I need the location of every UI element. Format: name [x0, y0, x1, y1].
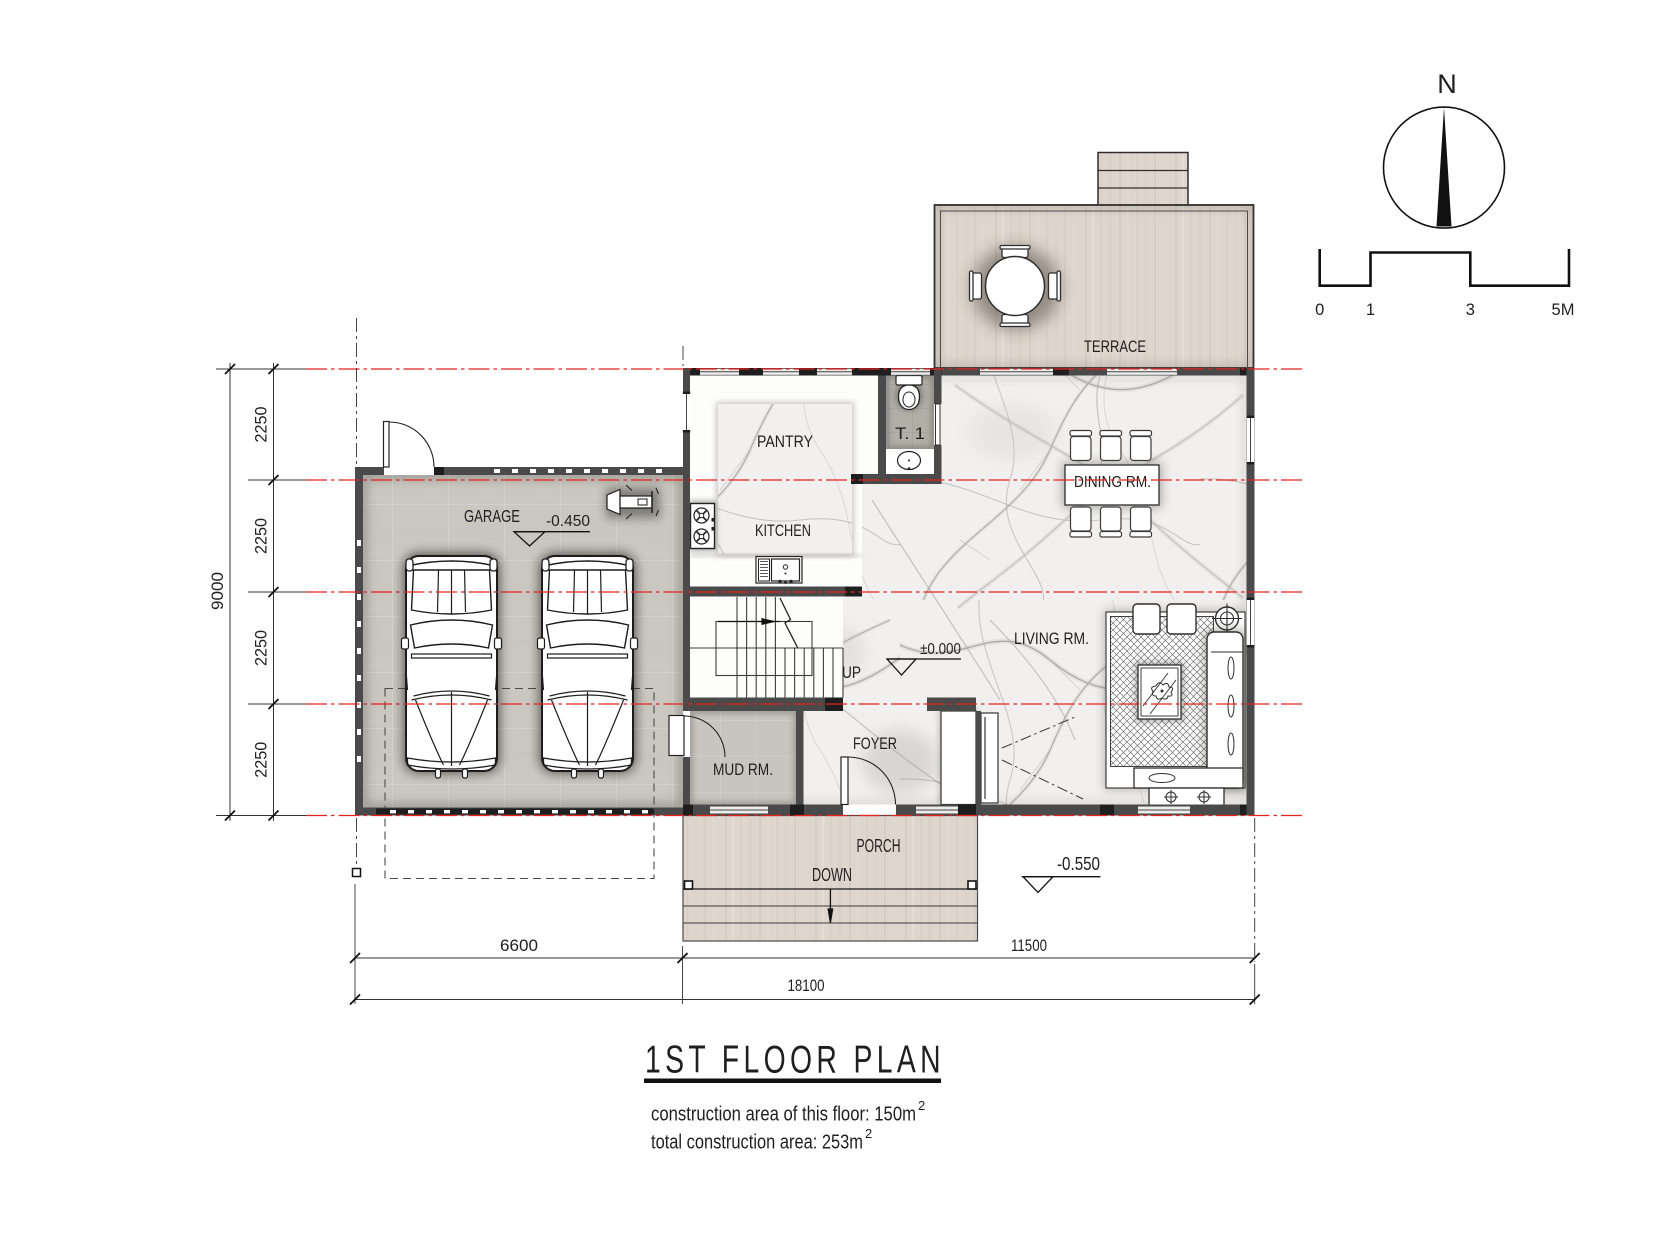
- svg-text:-0.450: -0.450: [546, 513, 590, 530]
- svg-text:3: 3: [1466, 301, 1475, 319]
- svg-text:2250: 2250: [252, 630, 271, 666]
- svg-text:1ST FLOOR PLAN: 1ST FLOOR PLAN: [645, 1039, 945, 1082]
- svg-text:PORCH: PORCH: [857, 836, 901, 856]
- svg-text:DOWN: DOWN: [812, 865, 852, 885]
- svg-text:T. 1: T. 1: [895, 424, 925, 443]
- svg-text:N: N: [1437, 69, 1457, 99]
- svg-text:2250: 2250: [252, 407, 271, 443]
- svg-text:TERRACE: TERRACE: [1084, 337, 1146, 356]
- svg-text:-0.550: -0.550: [1057, 854, 1100, 874]
- svg-text:2: 2: [865, 1126, 872, 1141]
- svg-text:KITCHEN: KITCHEN: [755, 521, 811, 540]
- svg-text:±0.000: ±0.000: [920, 641, 961, 658]
- svg-text:DINING RM.: DINING RM.: [1074, 474, 1151, 491]
- svg-text:6600: 6600: [500, 936, 538, 955]
- svg-text:UP: UP: [842, 664, 861, 682]
- svg-text:construction area of this floo: construction area of this floor: 150m: [651, 1104, 916, 1126]
- svg-text:GARAGE: GARAGE: [464, 506, 520, 526]
- svg-text:5M: 5M: [1552, 301, 1575, 319]
- svg-text:MUD RM.: MUD RM.: [713, 761, 773, 779]
- svg-text:PANTRY: PANTRY: [757, 432, 813, 451]
- svg-text:1: 1: [1366, 301, 1375, 319]
- svg-text:total construction area: 253m: total construction area: 253m: [651, 1132, 863, 1154]
- svg-text:18100: 18100: [788, 976, 825, 995]
- svg-text:11500: 11500: [1011, 936, 1047, 955]
- svg-text:FOYER: FOYER: [853, 735, 897, 753]
- svg-text:2: 2: [918, 1098, 925, 1113]
- svg-text:2250: 2250: [252, 742, 271, 778]
- svg-text:9000: 9000: [208, 572, 227, 610]
- svg-text:2250: 2250: [252, 518, 271, 554]
- svg-text:LIVING RM.: LIVING RM.: [1014, 629, 1089, 648]
- svg-text:0: 0: [1315, 301, 1324, 319]
